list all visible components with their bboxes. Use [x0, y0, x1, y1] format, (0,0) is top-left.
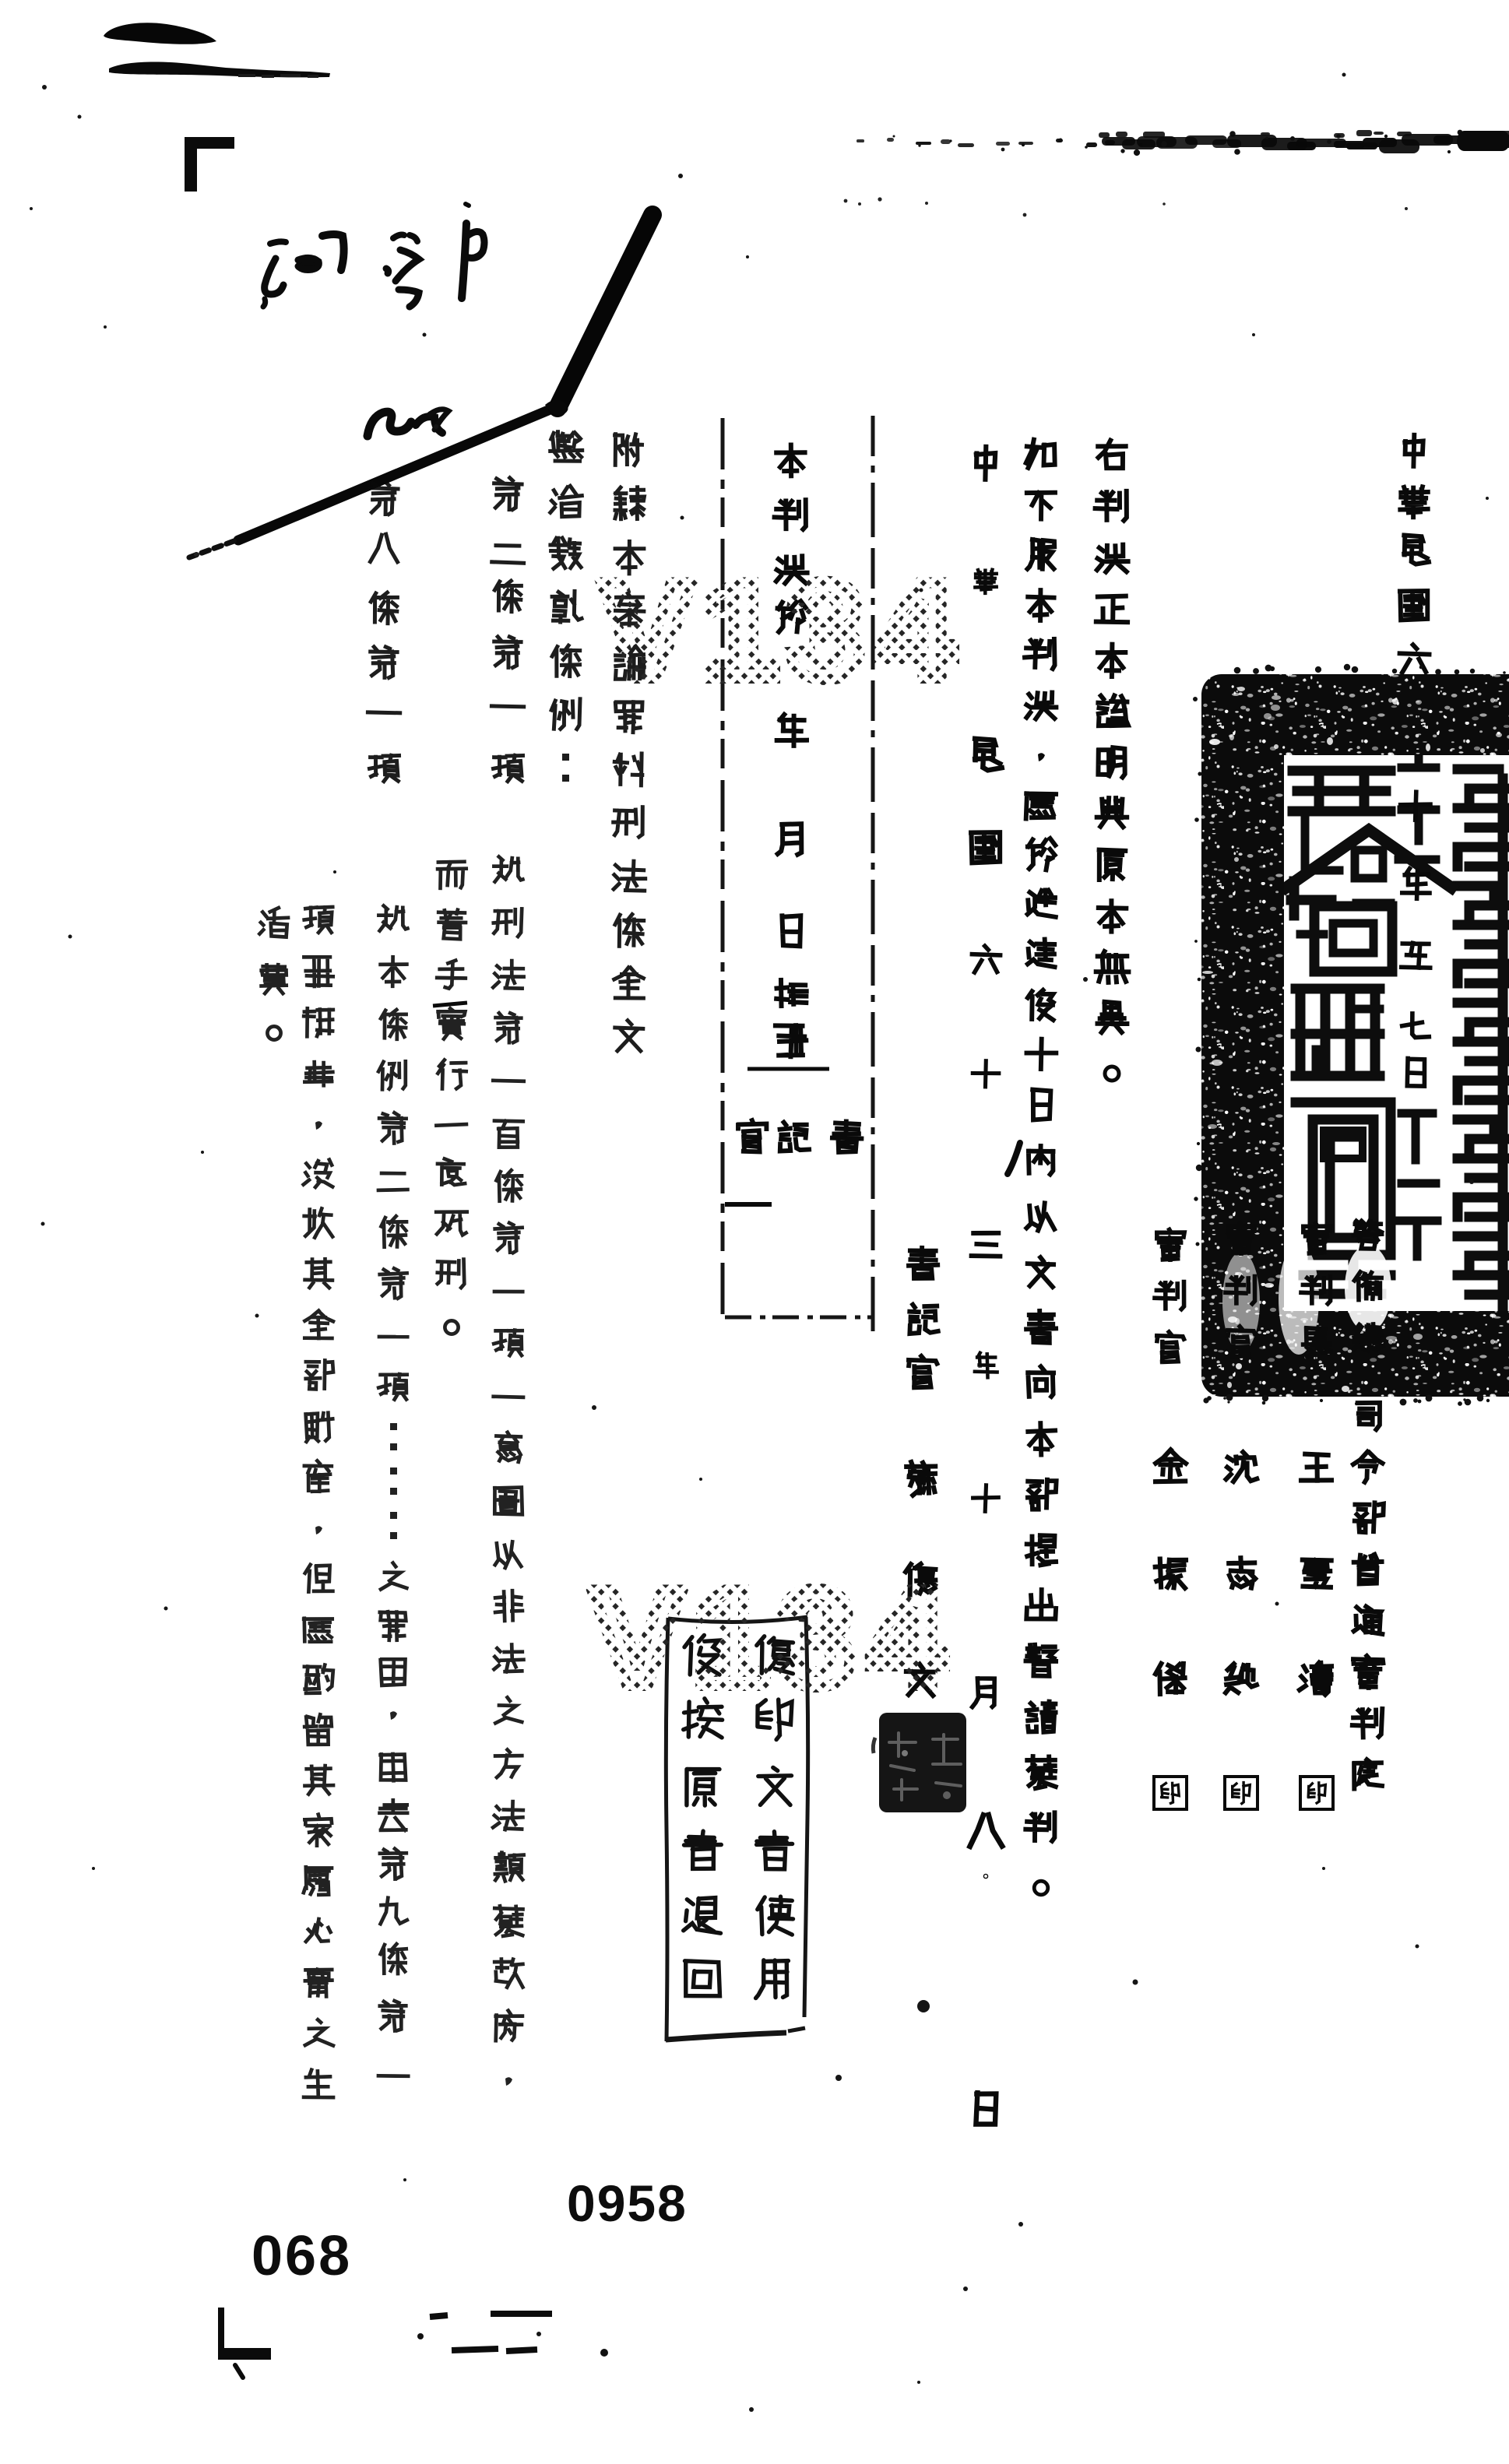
svg-text:1: 1	[702, 553, 779, 708]
svg-text:V: V	[591, 1560, 684, 1715]
svg-text:4: 4	[878, 553, 955, 708]
svg-text:3: 3	[787, 553, 864, 708]
svg-text:0958: 0958	[567, 2174, 688, 2232]
svg-text:3: 3	[778, 1560, 855, 1715]
svg-text:V: V	[600, 553, 693, 708]
svg-text:1: 1	[692, 1560, 769, 1715]
svg-text:4: 4	[868, 1560, 945, 1715]
svg-text:068: 068	[251, 2225, 352, 2287]
